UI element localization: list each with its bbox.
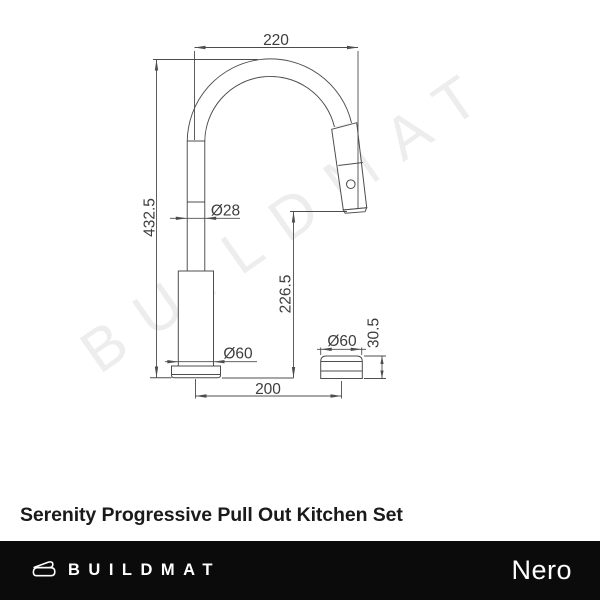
dim-label-control-height: 30.5: [366, 318, 383, 348]
buildmat-logo: BUILDMAT: [31, 559, 221, 582]
dim-label-spout-diameter: Ø28: [211, 203, 240, 220]
dim-226-5: [290, 212, 347, 379]
spray-head: [332, 123, 367, 210]
mixer-collar: [172, 366, 221, 375]
dim-30-5: [364, 356, 386, 379]
faucet-technical-drawing: 220 432.5 Ø28 226.5 Ø60 200 Ø60 30.5: [0, 0, 600, 540]
footer-bar: BUILDMAT Nero: [0, 541, 600, 600]
dim-label-outlet-height: 226.5: [278, 275, 295, 314]
spray-head-button: [347, 180, 356, 189]
dim-label-top-width: 220: [263, 32, 289, 49]
dim-label-total-height: 432.5: [142, 198, 159, 237]
product-title: Serenity Progressive Pull Out Kitchen Se…: [20, 504, 403, 527]
mixer-base-plate: [172, 375, 221, 378]
nero-logo: Nero: [511, 555, 572, 586]
dim-label-body-diameter: Ø60: [223, 346, 253, 363]
dim-label-control-diameter: Ø60: [327, 333, 357, 350]
control-body: [321, 356, 363, 379]
mixer-body: [178, 271, 213, 366]
spec-sheet: BUILDMAT: [0, 0, 600, 600]
buildmat-logo-text: BUILDMAT: [68, 561, 221, 580]
dim-label-spacing: 200: [255, 381, 281, 398]
buildmat-logo-icon: [31, 559, 58, 582]
